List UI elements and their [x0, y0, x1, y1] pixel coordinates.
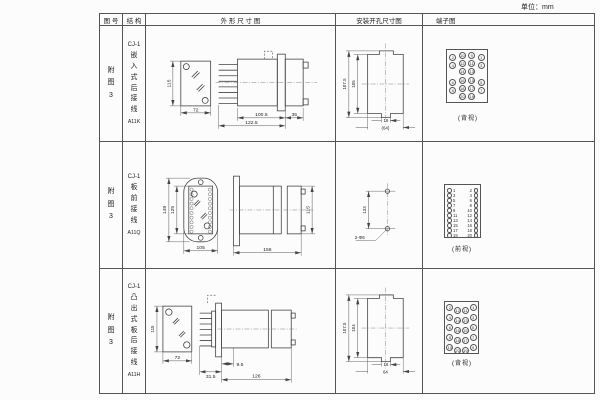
- terminal-18: 18: [454, 337, 461, 344]
- figure-no: 附 图 3: [108, 186, 115, 224]
- side-view: 156 115: [230, 176, 316, 256]
- dim-label: 105: [351, 79, 356, 87]
- front-view: 115 72: [150, 306, 192, 364]
- terminal-4: 4: [449, 62, 456, 69]
- terminal-view-label: (前视): [437, 244, 487, 253]
- screw-mark-icon: [192, 71, 205, 91]
- header-structure: 结 构: [123, 14, 146, 26]
- dim-label: 107.5: [342, 321, 347, 333]
- terminal-diagram-cell: 1234567891011121314151617181920 (前视): [423, 142, 595, 269]
- front-view: 149 125 105: [162, 178, 217, 254]
- dim-label: 72: [175, 354, 181, 360]
- terminal-1: 1: [478, 54, 485, 61]
- terminal-12: 12: [454, 307, 461, 314]
- outline-drawing-a11h: 115 72 9.5: [146, 269, 335, 394]
- terminal-15: 15: [468, 77, 475, 84]
- terminal-20: 20: [459, 93, 466, 100]
- model-code-label: A11K: [128, 119, 140, 125]
- terminal-5: 5: [470, 324, 477, 331]
- terminal-2: 2: [446, 304, 453, 311]
- structure-type-label: 板 前 接 线: [131, 183, 138, 227]
- install-hole-drawing-a11h: 107.5 104 16 64: [336, 269, 422, 394]
- terminal-13: 13: [462, 317, 469, 324]
- terminal-9: 9: [470, 344, 477, 351]
- terminal-6: 6: [446, 324, 453, 331]
- dim-label: 16: [383, 362, 388, 367]
- install-drawing-cell: 107.5 105 16 (64): [336, 26, 423, 142]
- terminal-8: 8: [449, 87, 456, 94]
- dim-label: 100.5: [255, 111, 268, 117]
- terminal-diagram-cell: 2121114141336161558181771020199 (背视): [423, 269, 595, 394]
- terminal-12: 12: [459, 60, 466, 67]
- seal-wire-icon: [264, 51, 272, 59]
- dim-label: 156: [263, 246, 272, 252]
- terminal-9: 9: [468, 52, 475, 59]
- structure-cell: CJ-1 嵌 入 式 后 接 线 A11K: [123, 26, 146, 142]
- terminal-16: 16: [459, 77, 466, 84]
- dim-label: 115: [150, 324, 155, 332]
- seal-wire-icon: [208, 295, 216, 303]
- terminal-4: 4: [446, 314, 453, 321]
- terminal-number: 19: [453, 233, 458, 238]
- terminal-view-label: (背视): [440, 113, 496, 122]
- header-outline-drawing: 外 形 尺 寸 图: [146, 14, 336, 26]
- install-hole-drawing-a11q: 133 2-Φ6: [336, 142, 422, 269]
- model-label: CJ-1: [128, 284, 141, 290]
- terminal-1: 1: [470, 304, 477, 311]
- terminal-7: 7: [470, 334, 477, 341]
- dim-label: 122.5: [245, 119, 258, 125]
- dim-label: 115: [305, 205, 311, 213]
- terminal-14: 14: [459, 68, 466, 75]
- terminal-pins: [200, 313, 212, 346]
- terminal-7: 7: [478, 87, 485, 94]
- terminal-17: 17: [468, 85, 475, 92]
- dim-label: 9.5: [237, 361, 244, 367]
- terminal-strip: [190, 187, 211, 232]
- dim-label: 105: [197, 244, 206, 250]
- screw-mark-icon: [173, 318, 185, 337]
- dim-label: 16: [383, 118, 388, 123]
- terminal-19: 19: [468, 93, 475, 100]
- unit-label: 单位：mm: [521, 2, 554, 12]
- outline-drawing-cell: 115 72 9.5: [146, 269, 336, 394]
- dim-label: 104: [351, 323, 356, 331]
- dim-label: 133: [362, 205, 367, 213]
- structure-type-label: 凸 出 式 板 后 接 线: [131, 293, 138, 369]
- figure-no: 附 图 3: [108, 65, 115, 103]
- header-figure-no: 图 号: [100, 14, 123, 26]
- dim-label: 72: [193, 107, 199, 113]
- structure-cell: CJ-1 板 前 接 线 A11Q: [123, 142, 146, 269]
- terminal-box: 2121114141336161558181771020199: [444, 301, 479, 354]
- terminal-10: 10: [459, 52, 466, 59]
- terminal-box: 1234567891011121314151617181920: [444, 184, 481, 238]
- model-label: CJ-1: [128, 42, 141, 48]
- dimension-table: 图 号 结 构 外 形 尺 寸 图 安装开孔尺寸图 端子图 附 图 3 CJ-1…: [99, 13, 595, 394]
- terminal-circle: [447, 233, 452, 238]
- terminal-3: 3: [478, 62, 485, 69]
- terminal-19: 19: [462, 347, 469, 354]
- dim-label: 64: [383, 369, 388, 374]
- terminal-15: 15: [462, 327, 469, 334]
- install-hole-drawing-a11k: 107.5 105 16 (64): [336, 26, 422, 142]
- dim-label: 107.5: [342, 77, 347, 89]
- terminal-16: 16: [454, 327, 461, 334]
- dim-label: 126: [252, 373, 261, 379]
- terminal-diagram-cell: 2109141211314136161558181772019 (背视): [423, 26, 595, 142]
- figure-no-cell: 附 图 3: [100, 26, 123, 142]
- terminal-box: 2109141211314136161558181772019: [446, 49, 488, 103]
- header-terminal-drawing: 端子图: [423, 14, 595, 26]
- outline-drawing-a11k: 115 72 100.5 35: [146, 26, 335, 142]
- figure-no-cell: 附 图 3: [100, 142, 123, 269]
- install-drawing-cell: 107.5 104 16 64: [336, 269, 423, 394]
- dim-label: 35: [291, 111, 297, 117]
- dim-label: 31.5: [206, 374, 216, 380]
- terminal-circle: [474, 233, 479, 238]
- terminal-8: 8: [446, 334, 453, 341]
- terminal-3: 3: [470, 314, 477, 321]
- dim-label: 125: [170, 205, 176, 214]
- structure-cell: CJ-1 凸 出 式 板 后 接 线 A11H: [123, 269, 146, 394]
- terminal-14: 14: [454, 317, 461, 324]
- terminal-5: 5: [478, 79, 485, 86]
- dim-label: 115: [166, 79, 172, 87]
- model-label: CJ-1: [128, 174, 141, 180]
- dim-label: (64): [381, 125, 389, 130]
- header-install-drawing: 安装开孔尺寸图: [336, 14, 423, 26]
- terminal-6: 6: [449, 79, 456, 86]
- terminal-pins: [219, 64, 238, 103]
- side-view: 9.5 31.5 126: [200, 295, 297, 383]
- structure-type-label: 嵌 入 式 后 接 线: [131, 51, 138, 116]
- side-view: 100.5 35 122.5: [216, 51, 317, 129]
- terminal-view-label: (背视): [437, 358, 487, 367]
- terminal-17: 17: [462, 337, 469, 344]
- terminal-11: 11: [468, 60, 475, 67]
- model-code-label: A11H: [128, 372, 141, 378]
- outline-drawing-cell: 115 72 100.5 35: [146, 26, 336, 142]
- terminal-10: 10: [446, 344, 453, 351]
- install-drawing-cell: 133 2-Φ6: [336, 142, 423, 269]
- outline-drawing-cell: 149 125 105 156: [146, 142, 336, 269]
- terminal-11: 11: [462, 307, 469, 314]
- front-view: 115 72: [166, 61, 210, 116]
- page: 单位：mm 图 号 结 构 外 形 尺 寸 图 安装开孔尺寸图 端子图 附 图 …: [0, 0, 600, 400]
- figure-no: 附 图 3: [108, 312, 115, 350]
- terminal-13: 13: [468, 68, 475, 75]
- screw-mark-icon: [194, 200, 207, 219]
- terminal-2: 2: [449, 54, 456, 61]
- terminal-row: 1920: [447, 233, 478, 238]
- dim-label: 2-Φ6: [355, 235, 365, 240]
- dim-label: 149: [162, 205, 168, 214]
- outline-drawing-a11q: 149 125 105 156: [146, 142, 335, 269]
- terminal-number: 20: [467, 233, 472, 238]
- terminal-18: 18: [459, 85, 466, 92]
- terminal-20: 20: [454, 347, 461, 354]
- model-code-label: A11Q: [128, 230, 141, 236]
- figure-no-cell: 附 图 3: [100, 269, 123, 394]
